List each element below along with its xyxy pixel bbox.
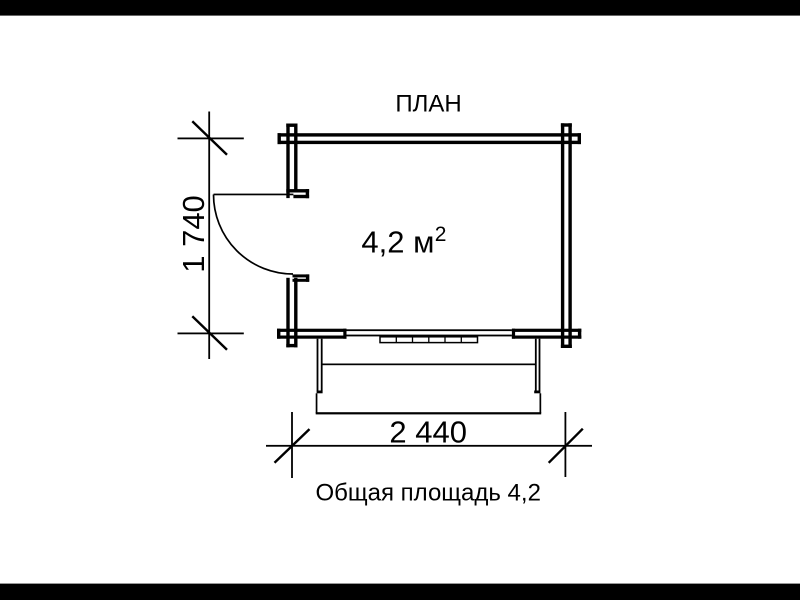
svg-text:ПЛАН: ПЛАН bbox=[395, 91, 461, 118]
svg-text:1 740: 1 740 bbox=[176, 195, 211, 273]
svg-text:2: 2 bbox=[435, 223, 447, 246]
svg-text:4,2 м: 4,2 м bbox=[361, 224, 434, 259]
svg-text:Общая площадь 4,2: Общая площадь 4,2 bbox=[316, 480, 541, 507]
svg-text:2 440: 2 440 bbox=[389, 414, 467, 449]
